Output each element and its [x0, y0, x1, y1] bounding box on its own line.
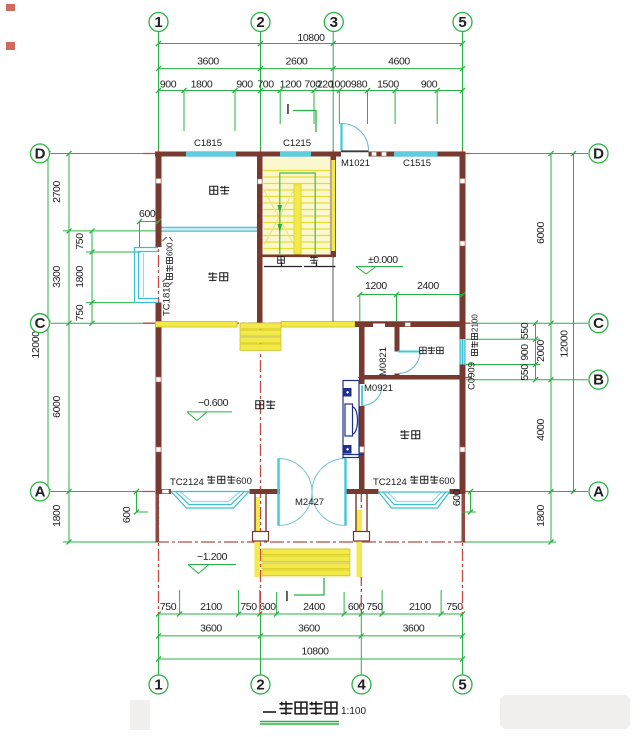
- svg-text:12000: 12000: [559, 330, 571, 358]
- svg-text:600: 600: [348, 601, 365, 613]
- svg-text:6000: 6000: [51, 396, 63, 418]
- svg-text:600: 600: [451, 489, 463, 506]
- svg-text:M0921: M0921: [364, 383, 393, 394]
- svg-text:1200: 1200: [365, 280, 387, 292]
- svg-text:I: I: [286, 101, 290, 118]
- svg-text:B: B: [593, 372, 604, 389]
- svg-text:2700: 2700: [51, 181, 63, 203]
- svg-text:3600: 3600: [403, 623, 425, 635]
- svg-text:900: 900: [236, 79, 253, 91]
- svg-text:3600: 3600: [197, 56, 219, 68]
- svg-text:600: 600: [166, 242, 175, 256]
- svg-text:1500: 1500: [377, 79, 399, 91]
- svg-text:I: I: [285, 588, 289, 605]
- svg-text:750: 750: [446, 601, 463, 613]
- svg-text:750: 750: [160, 601, 177, 613]
- svg-text:C1815: C1815: [194, 138, 222, 149]
- svg-text:−1.200: −1.200: [197, 551, 228, 563]
- svg-text:3600: 3600: [298, 623, 320, 635]
- svg-text:600: 600: [259, 601, 276, 613]
- svg-text:3600: 3600: [200, 623, 222, 635]
- svg-text:750: 750: [240, 601, 257, 613]
- svg-text:2: 2: [256, 677, 264, 694]
- svg-text:C: C: [35, 315, 46, 332]
- svg-text:C1515: C1515: [403, 158, 431, 169]
- svg-text:750: 750: [74, 233, 86, 250]
- svg-text:1:100: 1:100: [341, 706, 366, 717]
- svg-text:3: 3: [330, 14, 338, 31]
- svg-text:600: 600: [121, 506, 133, 523]
- svg-text:5: 5: [458, 677, 466, 694]
- svg-text:4000: 4000: [535, 419, 547, 441]
- svg-text:D: D: [593, 146, 604, 163]
- svg-text:600: 600: [439, 476, 455, 487]
- svg-text:TC1818: TC1818: [162, 282, 173, 316]
- svg-text:1: 1: [154, 677, 162, 694]
- svg-text:5: 5: [458, 14, 466, 31]
- svg-text:550: 550: [519, 322, 531, 339]
- svg-text:600: 600: [139, 208, 156, 220]
- svg-text:2100: 2100: [200, 601, 222, 613]
- svg-text:2600: 2600: [286, 56, 308, 68]
- svg-text:1800: 1800: [535, 505, 547, 527]
- svg-text:3300: 3300: [51, 266, 63, 288]
- svg-text:1800: 1800: [191, 79, 213, 91]
- svg-text:2400: 2400: [417, 280, 439, 292]
- svg-text:2100: 2100: [471, 314, 480, 332]
- svg-text:C1215: C1215: [283, 138, 311, 149]
- svg-text:1000: 1000: [329, 79, 351, 91]
- svg-text:−0.600: −0.600: [198, 397, 229, 409]
- svg-text:A: A: [35, 484, 46, 501]
- svg-text:12000: 12000: [30, 331, 42, 359]
- svg-text:980: 980: [351, 79, 368, 91]
- svg-text:TC2124: TC2124: [373, 477, 407, 488]
- svg-text:10800: 10800: [297, 32, 325, 44]
- svg-text:900: 900: [519, 344, 531, 361]
- svg-text:2000: 2000: [535, 340, 547, 362]
- svg-text:1: 1: [154, 14, 162, 31]
- svg-text:C: C: [593, 315, 604, 332]
- svg-text:4: 4: [357, 677, 366, 694]
- svg-text:C0909: C0909: [467, 362, 478, 390]
- svg-text:750: 750: [74, 304, 86, 321]
- svg-text:550: 550: [519, 364, 531, 381]
- svg-text:1200: 1200: [280, 79, 302, 91]
- svg-text:D: D: [35, 146, 46, 163]
- svg-text:4600: 4600: [388, 56, 410, 68]
- svg-text:M0821: M0821: [378, 347, 389, 376]
- svg-text:1800: 1800: [51, 505, 63, 527]
- svg-text:600: 600: [236, 476, 252, 487]
- svg-text:750: 750: [366, 601, 383, 613]
- svg-text:2400: 2400: [303, 601, 325, 613]
- svg-text:1800: 1800: [74, 266, 86, 288]
- svg-text:M2427: M2427: [295, 497, 324, 508]
- svg-text:TC2124: TC2124: [170, 477, 204, 488]
- svg-text:900: 900: [421, 79, 438, 91]
- svg-text:6000: 6000: [535, 222, 547, 244]
- svg-text:A: A: [593, 484, 604, 501]
- svg-text:M1021: M1021: [341, 158, 370, 169]
- svg-text:700: 700: [257, 79, 274, 91]
- svg-text:2: 2: [256, 14, 264, 31]
- svg-text:2100: 2100: [409, 601, 431, 613]
- svg-text:10800: 10800: [301, 646, 329, 658]
- svg-text:900: 900: [160, 79, 177, 91]
- svg-text:±0.000: ±0.000: [368, 254, 398, 266]
